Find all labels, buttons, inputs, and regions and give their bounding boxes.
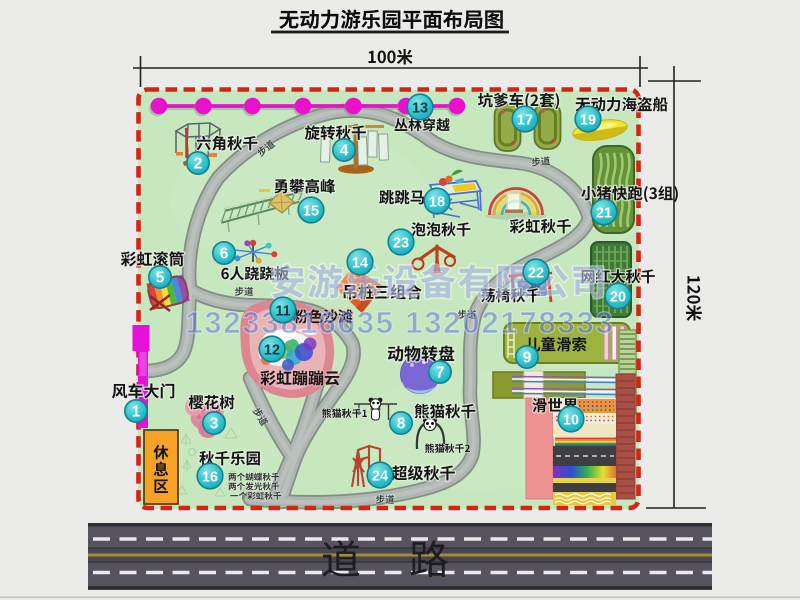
svg-text:20: 20: [610, 289, 626, 305]
svg-text:4: 4: [340, 142, 349, 159]
svg-text:18: 18: [429, 194, 445, 210]
svg-text:17: 17: [517, 112, 533, 128]
svg-text:15: 15: [303, 203, 319, 219]
svg-text:12: 12: [264, 342, 280, 358]
svg-text:6: 6: [220, 245, 229, 262]
svg-text:16: 16: [202, 469, 218, 485]
svg-text:1: 1: [132, 403, 141, 420]
svg-text:22: 22: [528, 265, 544, 281]
svg-text:13233816635 13202178333: 13233816635 13202178333: [185, 305, 614, 340]
svg-text:19: 19: [580, 112, 596, 128]
svg-text:14: 14: [352, 255, 368, 271]
svg-text:5: 5: [156, 269, 165, 286]
svg-text:7: 7: [436, 364, 445, 381]
svg-text:21: 21: [596, 205, 612, 221]
svg-text:2: 2: [194, 155, 203, 172]
svg-text:3: 3: [210, 415, 219, 432]
svg-text:24: 24: [372, 468, 388, 484]
svg-text:13: 13: [412, 100, 428, 116]
svg-text:8: 8: [397, 415, 406, 432]
svg-text:11: 11: [275, 303, 290, 319]
svg-text:23: 23: [393, 235, 409, 251]
svg-text:9: 9: [523, 349, 532, 366]
svg-text:10: 10: [563, 412, 579, 428]
